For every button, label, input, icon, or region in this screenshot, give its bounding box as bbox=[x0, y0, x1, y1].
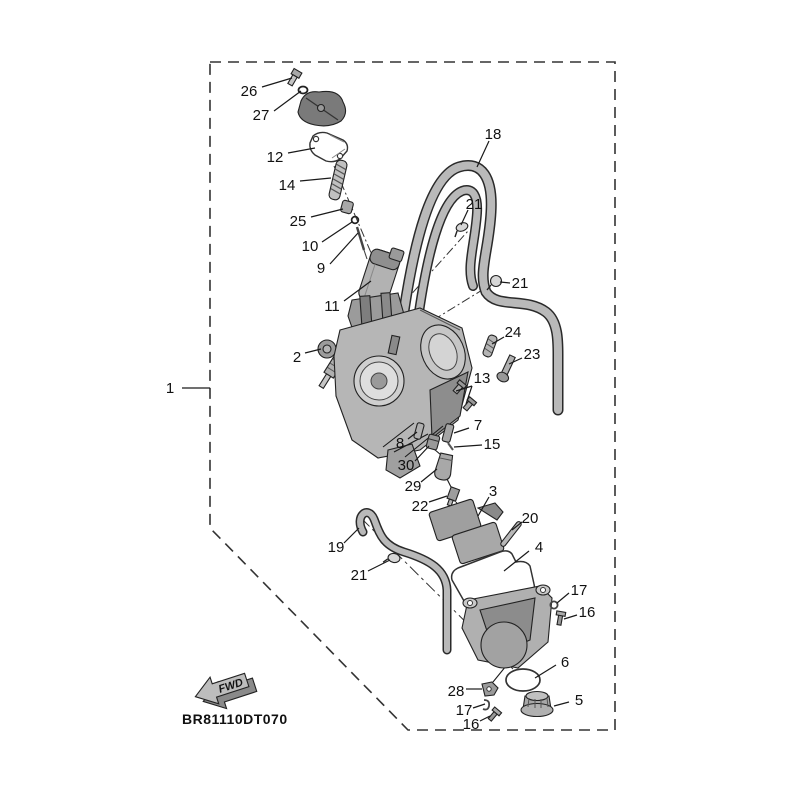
clamp-21-mid bbox=[487, 276, 502, 291]
callout-29: 29 bbox=[405, 478, 422, 495]
part-26-bolt bbox=[286, 69, 302, 87]
part-25 bbox=[340, 200, 354, 214]
callout-12: 12 bbox=[267, 149, 284, 166]
callout-9: 9 bbox=[317, 260, 325, 277]
callout-8: 8 bbox=[396, 435, 404, 452]
callout-5: 5 bbox=[575, 692, 583, 709]
callout-14: 14 bbox=[279, 177, 296, 194]
callout-27: 27 bbox=[253, 107, 270, 124]
callout-1: 1 bbox=[166, 380, 174, 397]
part-16-screw-lower bbox=[486, 707, 501, 723]
part-6-oring bbox=[506, 669, 540, 691]
exploded-parts-diagram: 26 27 12 14 25 10 9 11 2 1 18 21 21 24 2… bbox=[0, 0, 800, 800]
callout-7: 7 bbox=[474, 417, 482, 434]
callout-24: 24 bbox=[505, 324, 522, 341]
parts-diagram-page: 26 27 12 14 25 10 9 11 2 1 18 21 21 24 2… bbox=[0, 0, 800, 800]
callout-23: 23 bbox=[524, 346, 541, 363]
callout-21b: 21 bbox=[512, 275, 529, 292]
callout-28: 28 bbox=[448, 683, 465, 700]
clamp-21-upper bbox=[451, 221, 470, 237]
callout-4: 4 bbox=[535, 539, 543, 556]
callout-21c: 21 bbox=[351, 567, 368, 584]
callout-25: 25 bbox=[290, 213, 307, 230]
callout-2: 2 bbox=[293, 349, 301, 366]
callout-11: 11 bbox=[324, 298, 340, 315]
part-15-pin bbox=[448, 443, 453, 450]
part-14-spring bbox=[328, 159, 348, 200]
drawing-code: BR81110DT070 bbox=[182, 711, 288, 727]
part-23-screw bbox=[495, 354, 517, 384]
part-29-jet-holder bbox=[433, 453, 454, 482]
callout-15: 15 bbox=[484, 436, 501, 453]
callout-30: 30 bbox=[398, 457, 415, 474]
callout-13: 13 bbox=[474, 370, 491, 387]
pump-cover bbox=[298, 91, 346, 125]
callout-21a: 21 bbox=[466, 196, 483, 213]
callout-16b: 16 bbox=[463, 716, 480, 733]
hose-19 bbox=[360, 513, 447, 650]
callout-6: 6 bbox=[561, 654, 569, 671]
callout-3: 3 bbox=[489, 483, 497, 500]
callout-10: 10 bbox=[302, 238, 319, 255]
callout-17a: 17 bbox=[571, 582, 588, 599]
callout-22: 22 bbox=[412, 498, 429, 515]
callout-20: 20 bbox=[522, 510, 539, 527]
callout-16a: 16 bbox=[579, 604, 596, 621]
part-5-plug bbox=[521, 692, 553, 717]
callout-18: 18 bbox=[485, 126, 502, 143]
part-12-gasket bbox=[310, 132, 348, 161]
fwd-arrow: FWD bbox=[191, 665, 259, 717]
part-24-spring bbox=[482, 334, 498, 358]
callout-19: 19 bbox=[328, 539, 345, 556]
part-16-screw-right bbox=[555, 611, 566, 626]
callout-26: 26 bbox=[241, 83, 258, 100]
part-28-bracket bbox=[482, 682, 498, 696]
